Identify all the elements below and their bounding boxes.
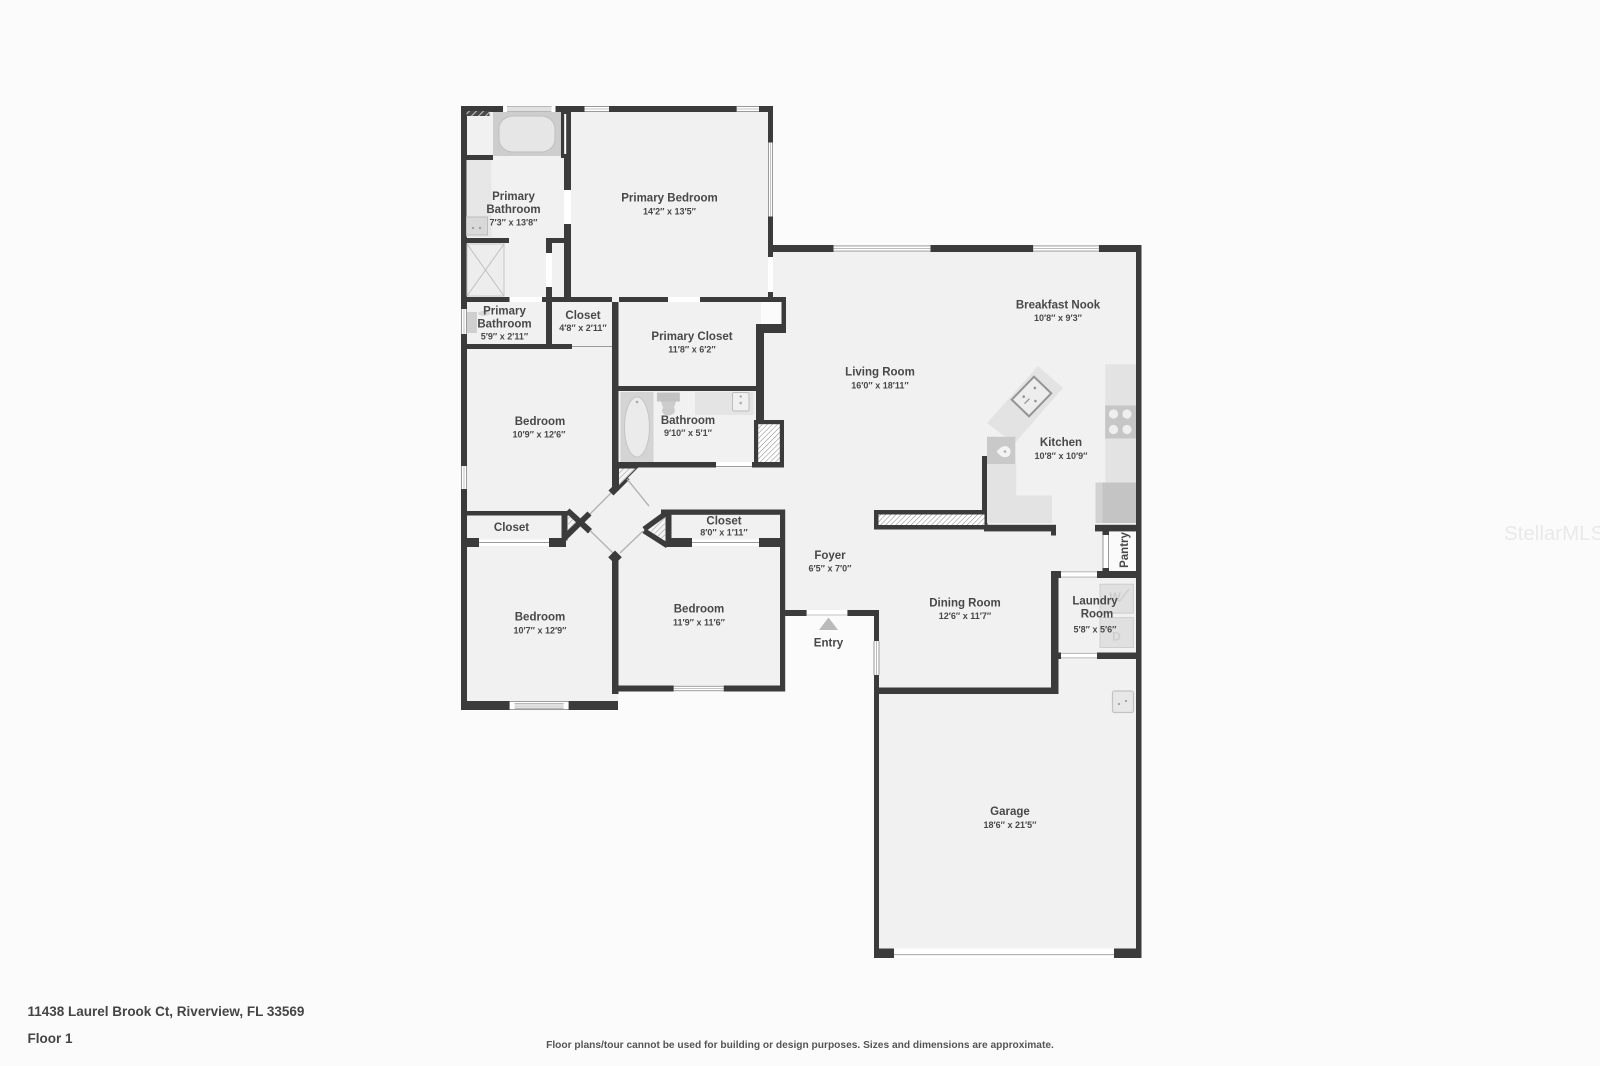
svg-text:18′6″ x 21′5″: 18′6″ x 21′5″ (984, 820, 1038, 830)
svg-text:10′8″ x 9′3″: 10′8″ x 9′3″ (1034, 313, 1083, 323)
svg-text:Closet: Closet (565, 310, 600, 322)
svg-text:9′10″ x 5′1″: 9′10″ x 5′1″ (664, 428, 713, 438)
svg-text:Breakfast Nook: Breakfast Nook (1016, 300, 1101, 312)
svg-text:5′9″ x 2′11″: 5′9″ x 2′11″ (481, 332, 529, 342)
svg-text:6′5″ x 7′0″: 6′5″ x 7′0″ (809, 564, 853, 574)
svg-text:16′0″ x 18′11″: 16′0″ x 18′11″ (851, 381, 909, 391)
svg-text:StellarMLS: StellarMLS (1504, 522, 1600, 545)
svg-text:11438 Laurel Brook Ct, Rivervi: 11438 Laurel Brook Ct, Riverview, FL 335… (28, 1004, 305, 1019)
svg-text:Pantry: Pantry (1119, 532, 1131, 568)
svg-text:Entry: Entry (814, 638, 844, 650)
svg-text:Garage: Garage (990, 806, 1030, 818)
svg-text:Bathroom: Bathroom (477, 319, 531, 331)
svg-text:14′2″ x 13′5″: 14′2″ x 13′5″ (643, 207, 697, 217)
svg-text:Living Room: Living Room (845, 367, 915, 379)
svg-text:11′9″ x 11′6″: 11′9″ x 11′6″ (673, 618, 726, 628)
svg-text:Primary: Primary (492, 191, 535, 203)
svg-text:Dining Room: Dining Room (929, 598, 1001, 610)
svg-text:Primary: Primary (483, 306, 526, 318)
svg-text:Primary Closet: Primary Closet (651, 331, 732, 343)
svg-text:11′8″ x 6′2″: 11′8″ x 6′2″ (668, 345, 716, 355)
svg-text:Bedroom: Bedroom (515, 612, 565, 624)
svg-text:Primary Bedroom: Primary Bedroom (621, 193, 718, 205)
svg-text:Foyer: Foyer (814, 550, 846, 562)
svg-text:4′8″ x 2′11″: 4′8″ x 2′11″ (559, 323, 607, 333)
svg-text:Bedroom: Bedroom (515, 416, 565, 428)
svg-text:10′9″ x 12′6″: 10′9″ x 12′6″ (513, 430, 567, 440)
svg-text:Floor plans/tour cannot be use: Floor plans/tour cannot be used for buil… (546, 1040, 1054, 1051)
svg-text:Bathroom: Bathroom (661, 415, 715, 427)
svg-text:Room: Room (1081, 609, 1114, 621)
svg-text:Floor 1: Floor 1 (28, 1031, 73, 1046)
svg-text:5′8″ x 5′6″: 5′8″ x 5′6″ (1074, 625, 1118, 635)
svg-text:Bedroom: Bedroom (674, 604, 724, 616)
svg-text:Laundry: Laundry (1072, 596, 1118, 608)
svg-text:Closet: Closet (706, 516, 741, 528)
svg-text:12′6″ x 11′7″: 12′6″ x 11′7″ (939, 611, 992, 621)
svg-text:8′0″ x 1′11″: 8′0″ x 1′11″ (700, 528, 748, 538)
svg-text:7′3″ x 13′8″: 7′3″ x 13′8″ (490, 218, 539, 228)
svg-text:Kitchen: Kitchen (1040, 437, 1082, 449)
svg-text:10′7″ x 12′9″: 10′7″ x 12′9″ (514, 626, 568, 636)
svg-text:10′8″ x 10′9″: 10′8″ x 10′9″ (1035, 451, 1089, 461)
svg-text:Bathroom: Bathroom (486, 204, 540, 216)
svg-text:Closet: Closet (494, 522, 529, 534)
